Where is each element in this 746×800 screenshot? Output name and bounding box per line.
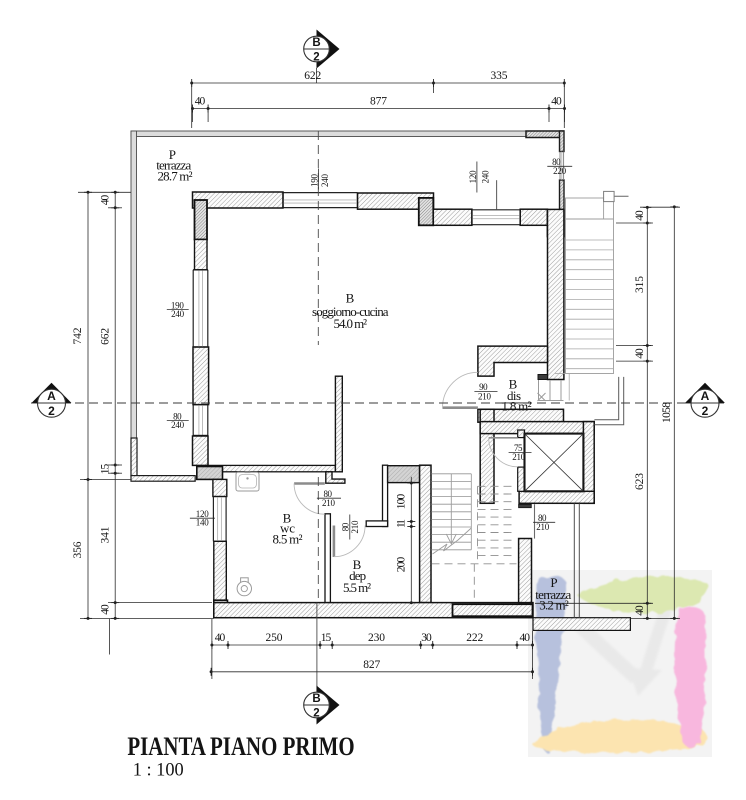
svg-text:B: B	[312, 693, 320, 705]
svg-text:140: 140	[196, 518, 210, 528]
svg-text:2: 2	[48, 404, 55, 418]
svg-text:11: 11	[396, 519, 408, 528]
svg-text:54.0 m²: 54.0 m²	[334, 316, 368, 331]
svg-text:8.5 m²: 8.5 m²	[273, 532, 303, 547]
svg-text:40: 40	[100, 604, 112, 615]
svg-text:1058: 1058	[661, 402, 673, 423]
svg-text:B: B	[312, 37, 320, 49]
svg-text:250: 250	[266, 632, 283, 644]
svg-text:PIANTA PIANO PRIMO: PIANTA PIANO PRIMO	[127, 732, 354, 761]
svg-text:210: 210	[512, 452, 526, 462]
svg-text:222: 222	[466, 632, 483, 644]
svg-text:240: 240	[171, 420, 185, 430]
svg-text:356: 356	[72, 541, 84, 558]
svg-text:A: A	[47, 389, 56, 403]
svg-text:341: 341	[100, 526, 112, 543]
svg-text:28.7 m²: 28.7 m²	[158, 168, 193, 183]
svg-text:220: 220	[553, 166, 567, 176]
svg-text:30: 30	[421, 632, 432, 644]
svg-text:210: 210	[478, 391, 492, 401]
svg-text:100: 100	[396, 494, 408, 510]
svg-text:210: 210	[322, 498, 336, 508]
svg-text:335: 335	[491, 70, 508, 82]
svg-text:40: 40	[215, 632, 226, 644]
svg-text:15: 15	[100, 464, 112, 475]
svg-text:1.8 m²: 1.8 m²	[502, 399, 532, 414]
svg-text:210: 210	[536, 522, 550, 532]
svg-text:40: 40	[634, 210, 646, 221]
svg-text:80: 80	[341, 522, 351, 531]
svg-text:315: 315	[634, 276, 646, 293]
svg-text:2: 2	[702, 404, 709, 418]
svg-text:210: 210	[350, 520, 360, 534]
svg-text:1 : 100: 1 : 100	[133, 759, 184, 780]
svg-text:662: 662	[100, 328, 112, 345]
svg-text:623: 623	[634, 473, 646, 490]
svg-text:877: 877	[370, 96, 387, 108]
svg-text:2: 2	[313, 52, 319, 64]
svg-text:240: 240	[171, 309, 185, 319]
svg-text:240: 240	[480, 170, 490, 184]
svg-text:240: 240	[320, 174, 330, 188]
svg-text:40: 40	[551, 96, 562, 108]
svg-text:40: 40	[519, 632, 530, 644]
svg-text:5.5 m²: 5.5 m²	[343, 580, 371, 595]
svg-text:827: 827	[363, 659, 380, 671]
svg-text:40: 40	[634, 348, 646, 359]
svg-text:A: A	[701, 389, 710, 403]
svg-text:190: 190	[310, 174, 320, 188]
svg-text:120: 120	[468, 170, 478, 184]
svg-text:40: 40	[634, 605, 646, 616]
svg-text:3.2 m²: 3.2 m²	[539, 598, 569, 613]
svg-text:200: 200	[396, 557, 408, 573]
svg-text:40: 40	[195, 96, 206, 108]
svg-text:742: 742	[72, 327, 84, 344]
svg-text:40: 40	[100, 195, 112, 206]
svg-text:15: 15	[321, 632, 332, 644]
svg-text:2: 2	[313, 708, 319, 720]
svg-text:230: 230	[368, 632, 385, 644]
svg-text:622: 622	[304, 70, 321, 82]
